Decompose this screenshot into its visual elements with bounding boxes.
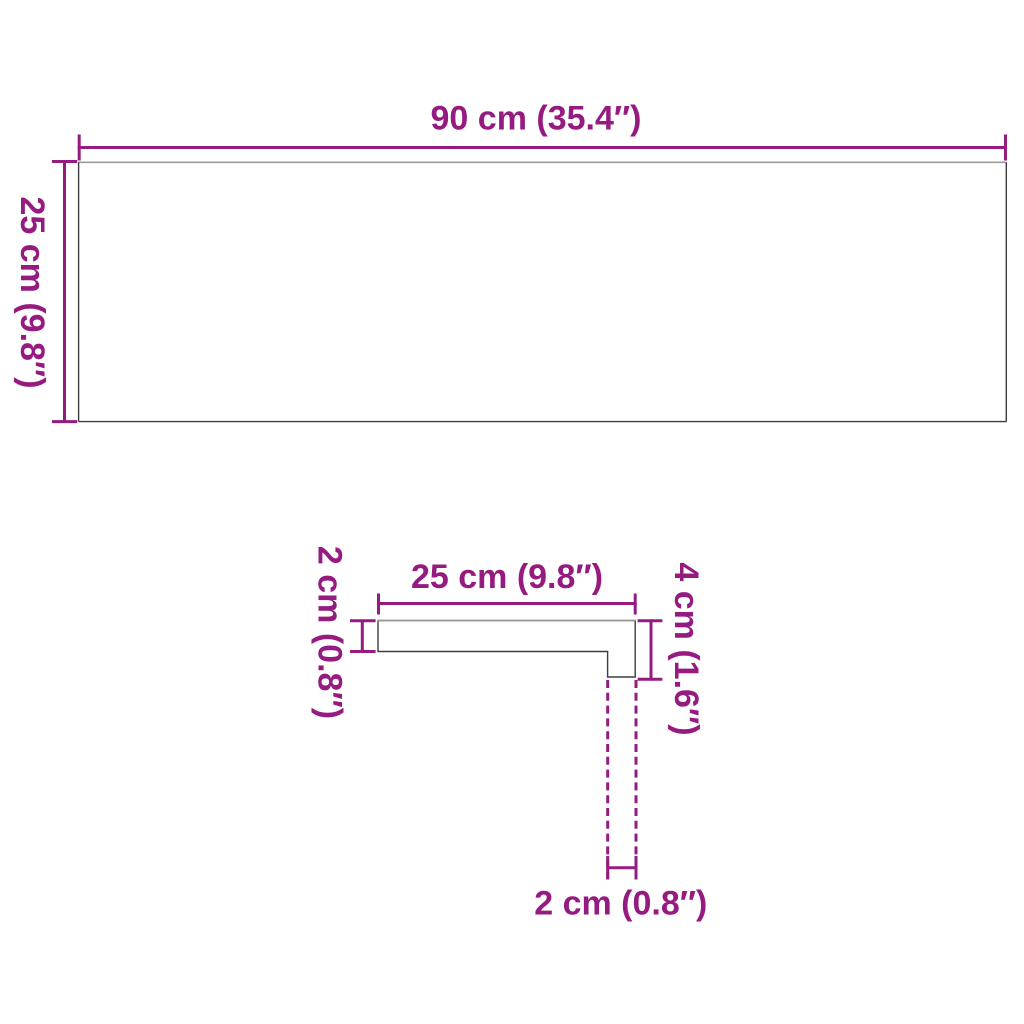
- svg-text:25 cm (9.8″): 25 cm (9.8″): [13, 196, 51, 388]
- svg-text:2 cm (0.8″): 2 cm (0.8″): [311, 546, 349, 719]
- svg-text:2 cm (0.8″): 2 cm (0.8″): [534, 884, 707, 922]
- svg-text:25 cm (9.8″): 25 cm (9.8″): [411, 558, 603, 596]
- svg-text:4 cm (1.6″): 4 cm (1.6″): [667, 562, 705, 735]
- svg-text:90 cm (35.4″): 90 cm (35.4″): [431, 100, 642, 138]
